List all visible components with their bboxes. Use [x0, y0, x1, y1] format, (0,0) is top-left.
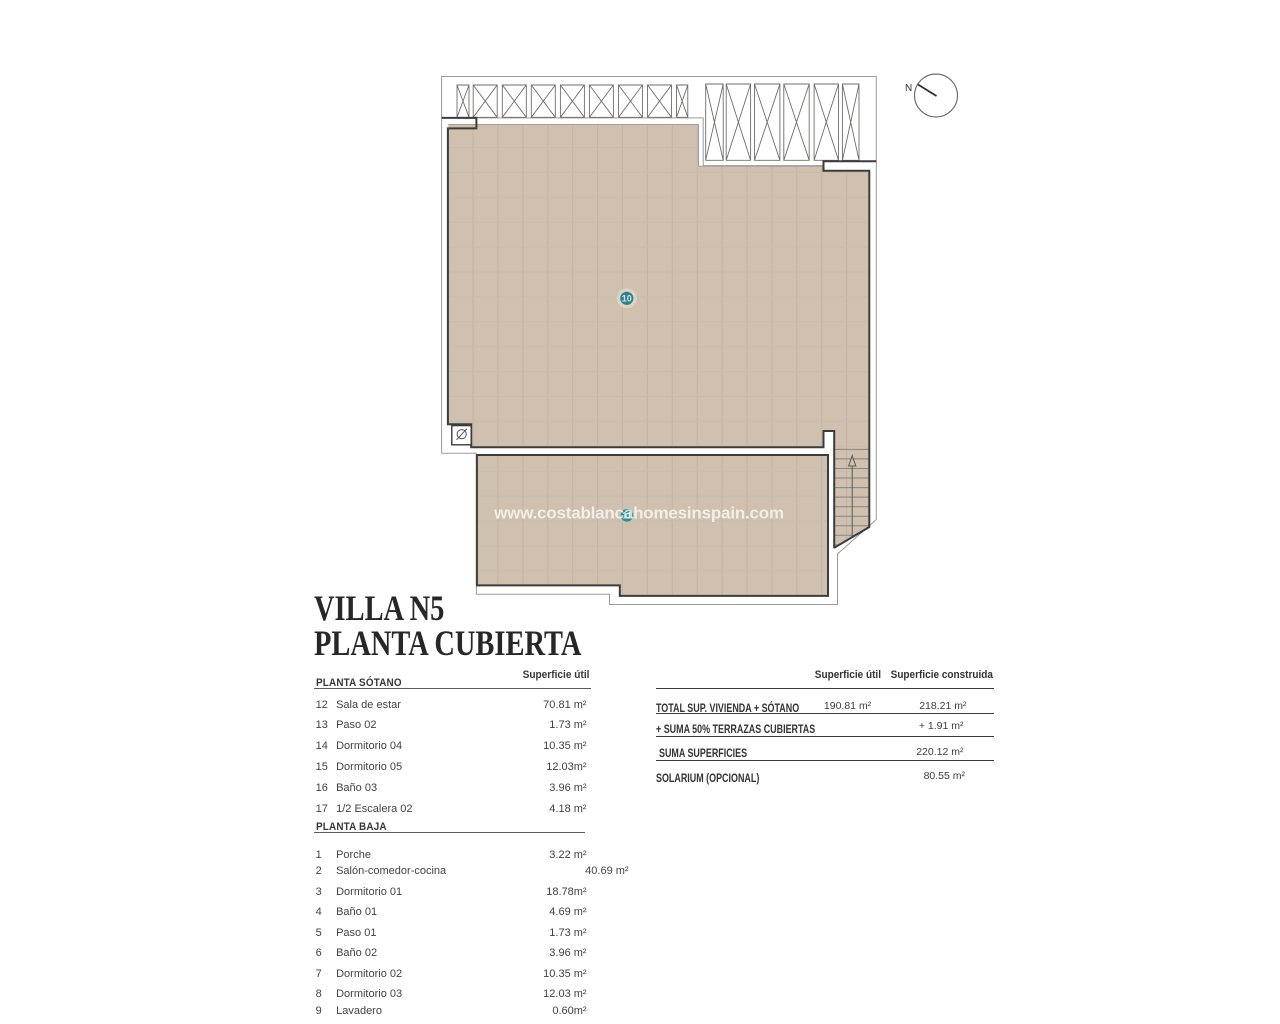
svg-text:www.costablancahomesinspain.co: www.costablancahomesinspain.com	[493, 504, 784, 523]
svg-text:10: 10	[622, 294, 632, 304]
svg-text:N: N	[905, 83, 912, 94]
